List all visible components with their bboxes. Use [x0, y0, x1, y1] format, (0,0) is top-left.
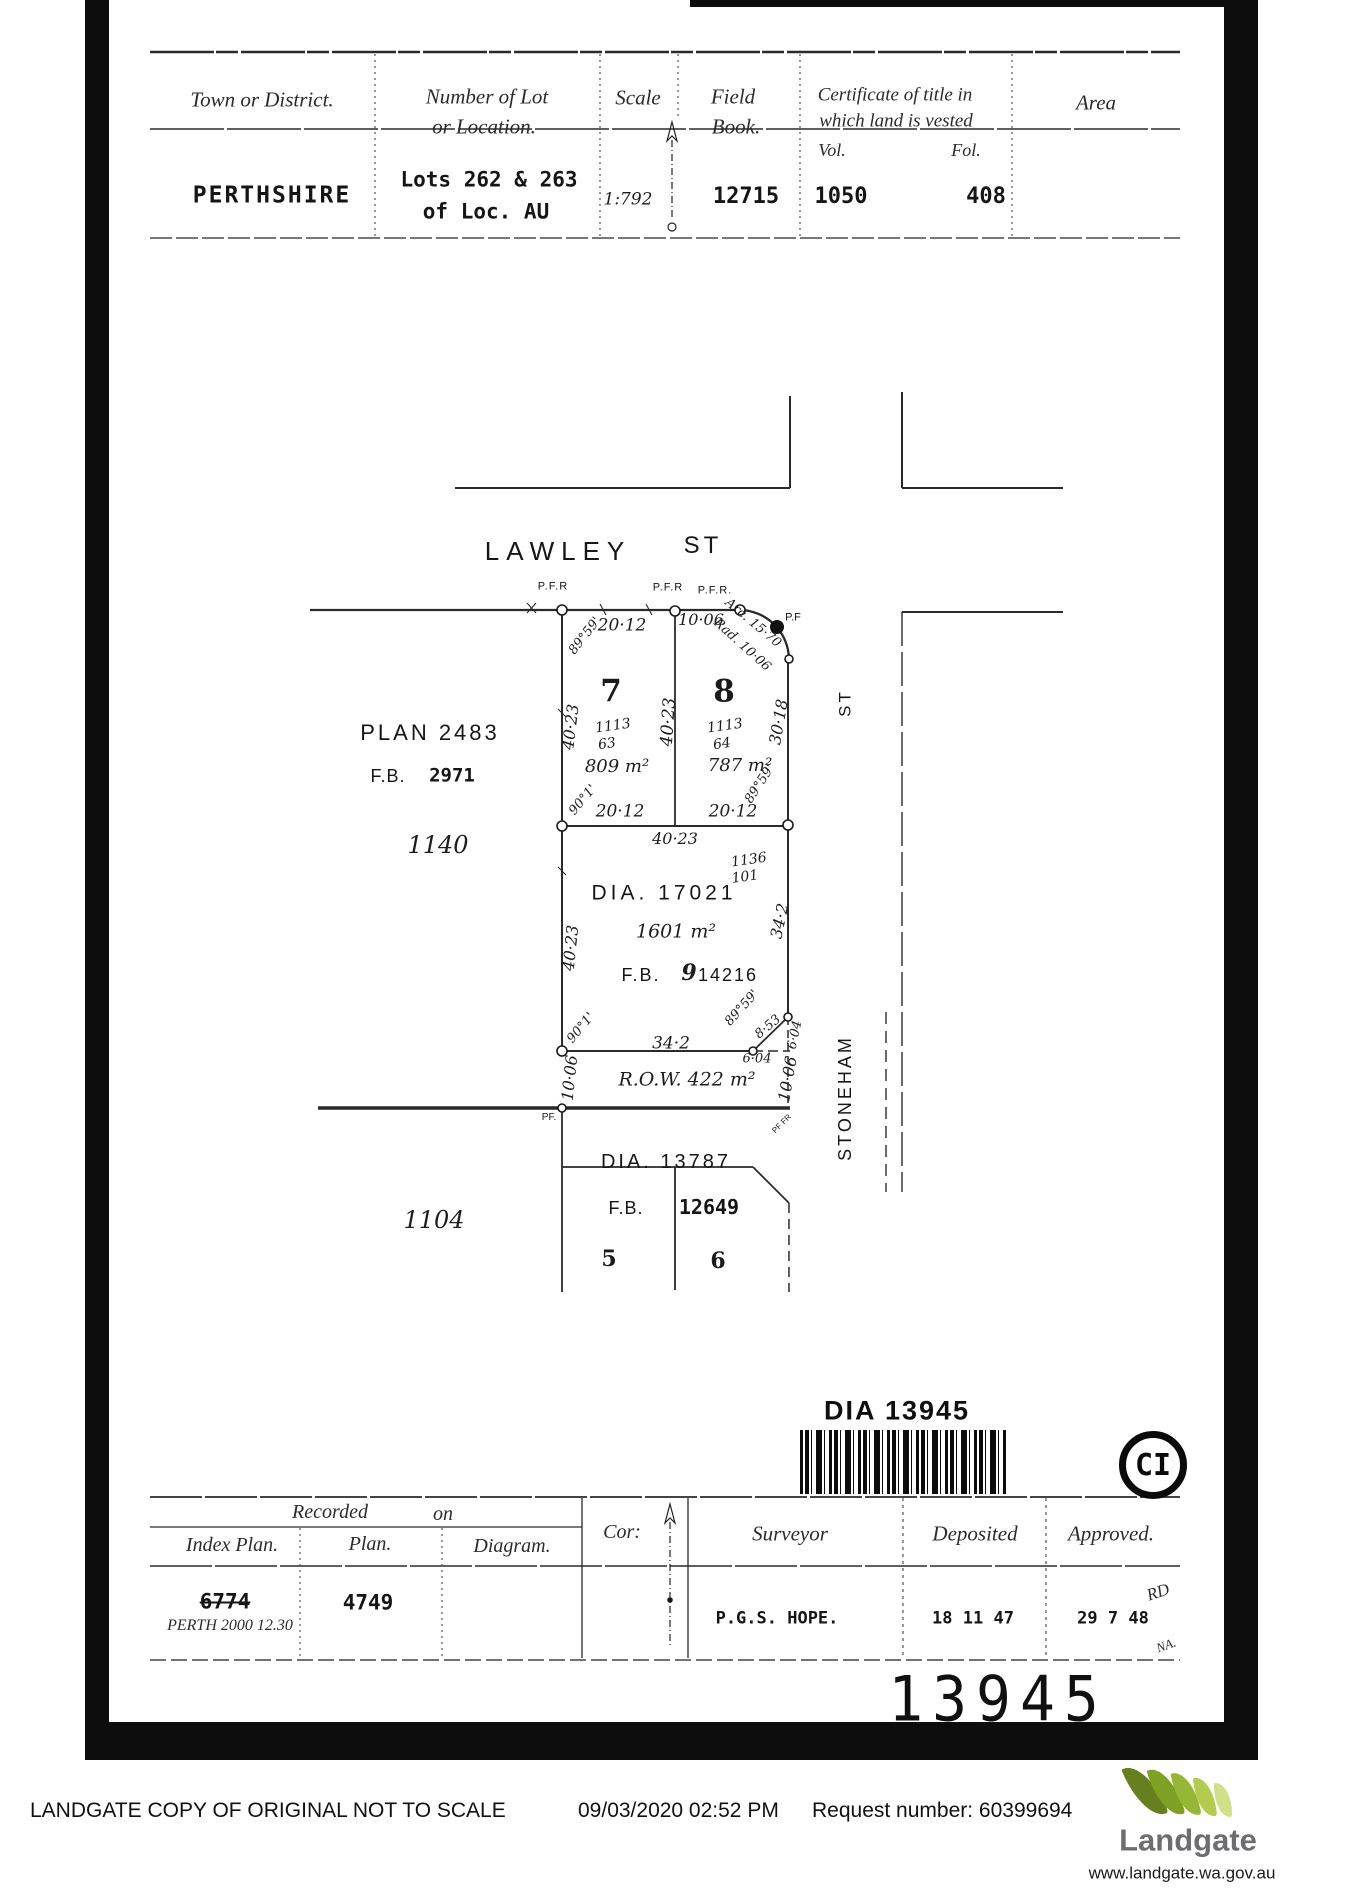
- dia-fraction-numerator: 1136: [730, 851, 767, 870]
- col-surveyor: Surveyor: [752, 1524, 828, 1545]
- col-certificate-line2: which land is vested: [819, 112, 973, 131]
- angle-sw-dia: 90°1': [565, 1010, 597, 1045]
- landgate-logo-icon: [1130, 1760, 1255, 1826]
- dim-4023-left: 40·23: [560, 703, 581, 750]
- dim-3018-right: 30·18: [767, 698, 791, 746]
- dia-fb-9: 9: [681, 962, 696, 984]
- lot7-fraction-numerator: 1113: [594, 717, 631, 736]
- lot-number-5: 5: [601, 1248, 616, 1270]
- dia-13787-label: DIA. 13787: [601, 1152, 731, 1172]
- landgate-datetime: 09/03/2020 02:52 PM: [578, 1800, 779, 1821]
- col-certificate-line1: Certificate of title in: [818, 86, 973, 105]
- lot7-area: 809 m²: [585, 758, 649, 776]
- plan-value: 4749: [343, 1593, 394, 1614]
- angle-nw: 89°59': [567, 615, 604, 657]
- lot8-fraction-numerator: 1113: [706, 717, 743, 736]
- lot-number-6: 6: [710, 1250, 725, 1272]
- index-plan-new-value: PERTH 2000 12.30: [167, 1618, 293, 1634]
- north-arrow-icon: [667, 122, 677, 231]
- landgate-brand: Landgate: [1119, 1825, 1257, 1856]
- dia-fb-number: 14216: [698, 966, 758, 984]
- dim-1006-row-right: 10·06: [776, 1055, 800, 1103]
- vol-value: 1050: [815, 186, 868, 208]
- pf-row-label: PF.: [542, 1113, 556, 1123]
- col-field-book-line2: Book.: [712, 117, 760, 138]
- approval-initials-1: RD: [1145, 1580, 1172, 1603]
- col-recorded: Recorded: [292, 1502, 368, 1522]
- landgate-url: www.landgate.wa.gov.au: [1089, 1865, 1276, 1882]
- approved-value: 29 7 48: [1077, 1611, 1149, 1628]
- angle-sw-lot7: 90°1': [567, 782, 599, 817]
- col-field-book-line1: Field: [711, 87, 755, 108]
- north-arrow-icon: [665, 1504, 675, 1648]
- col-lot-line2: or Location.: [432, 117, 536, 138]
- pf-mark-label: P.F: [785, 613, 801, 624]
- fb-2971-label: F.B.: [370, 767, 405, 785]
- scale-value: 1:792: [604, 192, 653, 209]
- barcode: [800, 1430, 1007, 1494]
- scanned-survey-document: Town or District. Number of Lot or Locat…: [0, 0, 1345, 1902]
- approval-initials-2: NA.: [1154, 1635, 1177, 1654]
- ci-stamp: CI: [1119, 1431, 1187, 1499]
- pfr-mark-label: P.F.R: [653, 583, 683, 594]
- lot-number-8: 8: [713, 677, 735, 708]
- lots-value-line1: Lots 262 & 263: [400, 170, 577, 191]
- col-town-district: Town or District.: [190, 90, 333, 111]
- pf-small-note: PF FR: [771, 1113, 793, 1135]
- dim-342-right: 34·2: [768, 902, 791, 940]
- dia2-fb-number: 12649: [679, 1197, 739, 1217]
- col-approved: Approved.: [1068, 1524, 1154, 1545]
- lot8-fraction-denominator: 64: [712, 736, 732, 752]
- dim-2012-bottom7: 20·12: [596, 804, 645, 821]
- pfr-mark-label: P.F.R.: [698, 586, 733, 597]
- location-1104: 1104: [403, 1208, 464, 1232]
- dim-4023-dia-left: 40·23: [561, 924, 582, 971]
- street-stoneham: STONEHAM: [836, 1035, 854, 1161]
- street-stoneham-st: ST: [837, 689, 854, 717]
- ci-stamp-text: CI: [1135, 1448, 1171, 1483]
- col-plan: Plan.: [349, 1534, 392, 1554]
- dia-17021-label: DIA. 17021: [591, 883, 736, 904]
- col-scale: Scale: [615, 88, 660, 109]
- index-plan-old-value: 6774: [200, 1592, 251, 1613]
- col-recorded-on: on: [433, 1504, 453, 1524]
- fb-2971-number: 2971: [429, 767, 475, 786]
- landgate-request-number: Request number: 60399694: [812, 1800, 1072, 1821]
- street-lawley: LAWLEY: [485, 538, 632, 564]
- location-1140: 1140: [407, 833, 468, 857]
- col-index-plan: Index Plan.: [186, 1535, 278, 1555]
- angle-se-dia: 89°59': [723, 988, 762, 1029]
- dia2-fb-label: F.B.: [608, 1199, 643, 1217]
- lot7-fraction-denominator: 63: [597, 736, 617, 752]
- dia-fb-label: F.B.: [621, 966, 660, 984]
- fol-value: 408: [966, 186, 1006, 208]
- col-area: Area: [1076, 93, 1116, 114]
- dia-area: 1601 m²: [636, 923, 716, 942]
- col-lot-line1: Number of Lot: [426, 87, 549, 108]
- col-cor: Cor:: [603, 1522, 641, 1542]
- pfr-mark-label: P.F.R: [538, 582, 568, 593]
- col-deposited: Deposited: [932, 1524, 1017, 1545]
- dim-342-bottom: 34·2: [652, 1036, 690, 1053]
- col-diagram: Diagram.: [473, 1536, 550, 1556]
- dim-4023-mid: 40·23: [659, 697, 679, 747]
- plan-2483-label: PLAN 2483: [360, 722, 500, 744]
- deposited-value: 18 11 47: [932, 1611, 1014, 1628]
- dim-1006-row-left: 10·06: [560, 1054, 581, 1101]
- dim-604-a: 6·04: [743, 1053, 772, 1066]
- district-value: PERTHSHIRE: [193, 185, 351, 208]
- lots-value-line2: of Loc. AU: [423, 202, 549, 223]
- dim-604-b: 6·04: [786, 1019, 805, 1050]
- dia-number-stamp: DIA 13945: [824, 1398, 970, 1425]
- dim-2012-bottom8: 20·12: [709, 804, 758, 821]
- dim-4023-dia-top: 40·23: [652, 831, 698, 847]
- dim-853-diagonal: 8·53: [753, 1013, 784, 1042]
- col-fol: Fol.: [951, 141, 981, 159]
- scan-border-top: [690, 0, 1258, 7]
- scan-border-left: [85, 0, 109, 1758]
- landgate-copy-text: LANDGATE COPY OF ORIGINAL NOT TO SCALE: [30, 1800, 506, 1821]
- row-easement-label: R.O.W. 422 m²: [618, 1071, 755, 1090]
- street-lawley-st: ST: [684, 534, 723, 558]
- field-book-value: 12715: [713, 186, 779, 208]
- dim-2012-top: 20·12: [598, 618, 647, 635]
- col-vol: Vol.: [818, 141, 846, 159]
- scan-border-right: [1224, 0, 1258, 1758]
- plan-big-number: 13945: [888, 1668, 1108, 1731]
- lot-number-7: 7: [600, 677, 622, 708]
- surveyor-value: P.G.S. HOPE.: [716, 1611, 839, 1628]
